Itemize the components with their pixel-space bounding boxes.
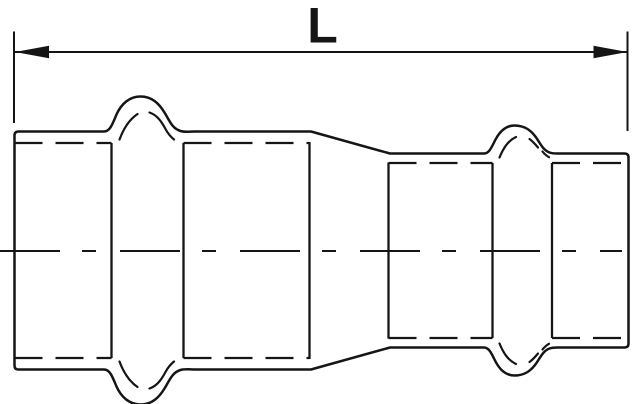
drawing-canvas: L — [0, 0, 640, 404]
bead-small-inner-arc — [500, 137, 517, 158]
dimension-annotation: L — [14, 0, 628, 131]
bead-large-inner-arc — [150, 113, 175, 140]
bead-large-inner-arc — [150, 362, 175, 389]
bead-large-inner-arc — [120, 362, 138, 388]
dimension-label: L — [307, 0, 338, 54]
bead-small-inner-arc — [500, 344, 517, 365]
dimension-arrow-left-icon — [15, 46, 49, 58]
dimension-arrow-right-icon — [594, 46, 628, 58]
reducing-coupling-drawing: L — [0, 0, 640, 404]
bead-large-inner-arc — [120, 114, 138, 140]
